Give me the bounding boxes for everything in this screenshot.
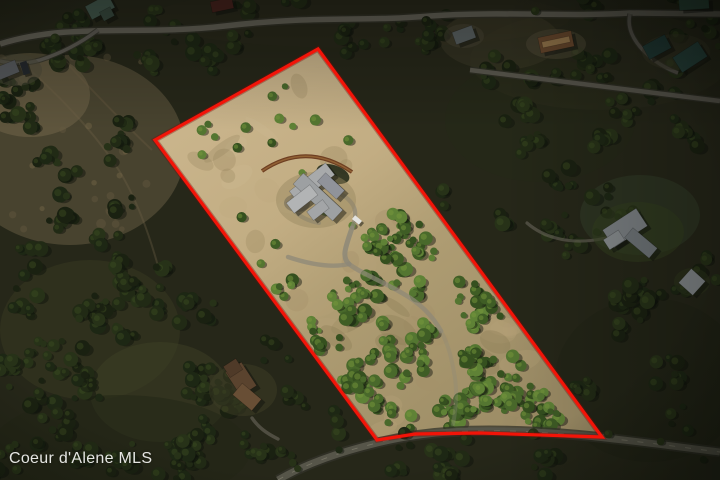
vignette (0, 0, 720, 480)
aerial-photo-listing: Coeur d'Alene MLS (0, 0, 720, 480)
mls-watermark: Coeur d'Alene MLS (9, 450, 152, 468)
aerial-scene-svg (0, 0, 720, 480)
